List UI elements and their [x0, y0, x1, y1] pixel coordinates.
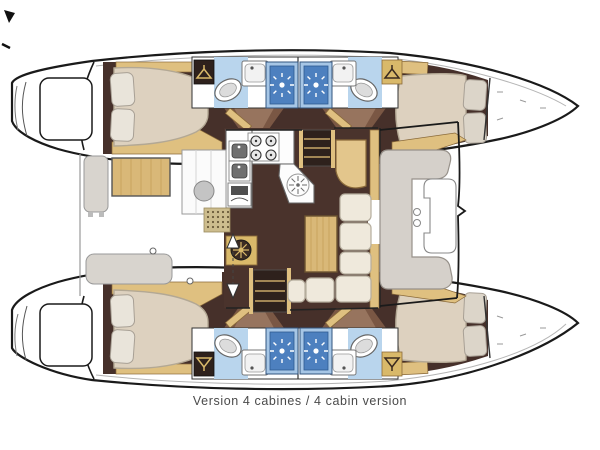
- cockpit-side-bench: [84, 156, 108, 212]
- pillow: [463, 79, 487, 110]
- bathrooms: [192, 57, 402, 108]
- caption: Version 4 cabines / 4 cabin version: [193, 394, 407, 408]
- stairs-icon: [299, 130, 335, 168]
- cup-holder: [414, 209, 421, 216]
- wardrobe-locker: [194, 60, 214, 84]
- shower-stall: [300, 62, 332, 108]
- washbasin-icon: [242, 61, 268, 86]
- wardrobe-locker: [382, 60, 402, 84]
- pillow: [463, 112, 487, 143]
- round-sink-icon: [287, 174, 309, 196]
- pillow: [110, 108, 135, 141]
- forward-table: [424, 179, 456, 253]
- dinette-table: [305, 216, 337, 272]
- nav-desk: [336, 140, 366, 188]
- fridge-icon: [228, 183, 251, 206]
- swim-platform-step: [40, 78, 92, 140]
- galley-sink-icon: [229, 141, 250, 181]
- swim-platform-step: [40, 304, 92, 366]
- double-berth: [396, 74, 466, 144]
- saloon: [224, 128, 381, 314]
- wet-bar-sink-icon: [194, 181, 214, 201]
- pillow: [110, 72, 135, 107]
- stove-burner-icon: [248, 133, 279, 161]
- cup-holder: [414, 220, 421, 227]
- washbasin-icon: [330, 61, 356, 86]
- cockpit-aft-bench: [86, 254, 172, 284]
- forward-crossbeam: [457, 122, 465, 298]
- floor-plan-figure: Version 4 cabines / 4 cabin version: [0, 0, 600, 450]
- shower-sunburst-icon: [270, 73, 294, 97]
- davit-marks: [2, 10, 15, 48]
- shower-stall: [266, 62, 298, 108]
- shower-sunburst-icon: [304, 73, 328, 97]
- floor-plan-svg: Version 4 cabines / 4 cabin version: [0, 0, 600, 450]
- stairs-icon: [249, 268, 291, 314]
- forward-cockpit: [380, 122, 465, 306]
- dotted-mat: [204, 208, 230, 232]
